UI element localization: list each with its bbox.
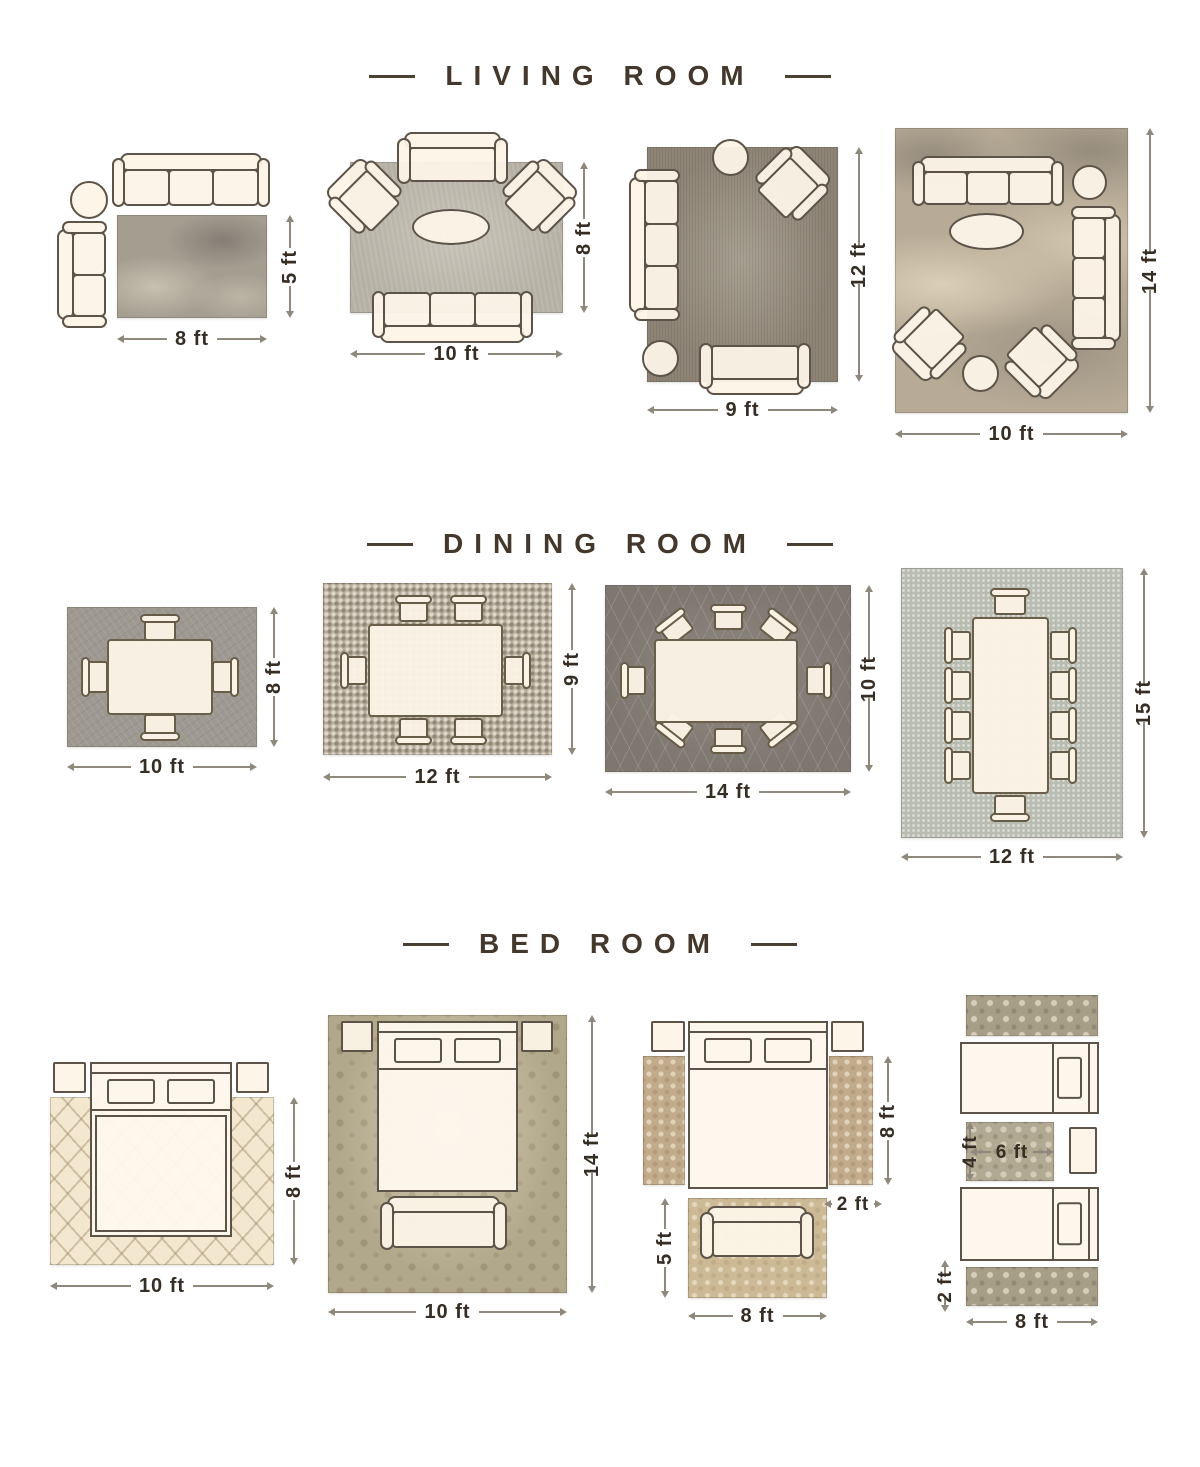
pillow [454,1038,502,1063]
arrowhead [270,740,278,747]
width-dimension: 9 ft [647,398,838,422]
dim-line [289,222,291,248]
chair-back [450,595,487,604]
arrowhead [580,306,588,313]
arrowhead [844,788,851,796]
chair-back [710,745,747,754]
chair-back [710,604,747,613]
sofa-cushions [644,180,679,310]
dim-line [469,776,545,778]
dim-line [273,614,275,658]
dim-line [908,856,981,858]
sofa-cushions [72,232,106,317]
arrowhead [831,406,838,414]
height-dimension: 12 ft [847,147,871,382]
arrowhead [117,335,124,343]
title-dash [403,943,449,946]
bed [688,1021,828,1189]
dining-table [972,617,1049,794]
arrowhead [605,788,612,796]
dim-line [1149,135,1151,252]
pillow [704,1038,752,1063]
dining-table [368,624,503,717]
dining-chair [502,654,529,687]
title-dash [367,543,413,546]
nightstand [53,1062,86,1093]
chair-back [395,736,432,745]
dim-line [293,1104,295,1162]
chair-back [944,747,953,784]
dining-chair [992,793,1028,820]
dim-line [571,688,573,748]
nightstand [831,1021,864,1052]
sofa [912,156,1064,206]
pillows [379,1033,516,1070]
chair-back [1068,627,1077,664]
sofa-cushions [123,169,259,206]
dining-chair [342,654,369,687]
arrowhead [1121,430,1128,438]
dim-label: 8 ft [869,1104,907,1138]
runner-rug [966,995,1098,1036]
dim-label: 2 ft [832,1195,875,1214]
headboard [92,1064,230,1074]
dim-line [591,1022,593,1135]
arrowhead [875,1200,882,1208]
dining-table [107,639,213,715]
coffee-table [949,213,1024,250]
coffee-table [412,209,490,245]
dim-line [217,338,260,340]
chair-back [1068,667,1077,704]
dim-line [887,1140,889,1179]
width-dimension: 14 ft [605,780,851,804]
rug-size-guide: LIVING ROOM 5 ft 8 ft [0,0,1200,1467]
dining-chair [83,659,110,695]
chair-back [1068,707,1077,744]
foot-rug-height-dimension: 5 ft [653,1198,677,1298]
arrowhead [661,1198,669,1205]
arrowhead [688,1312,695,1320]
dim-line [1043,856,1116,858]
dim-label: 5 ft [271,250,309,284]
width-dimension: 10 ft [350,342,563,366]
dim-line [977,1151,991,1153]
arrowhead [966,1122,974,1129]
sofa [112,153,270,207]
title-dash [785,75,831,78]
dim-label: 10 ft [131,757,193,777]
chair-back [230,657,239,697]
arrowhead [865,765,873,772]
twin-bed [960,1042,1099,1114]
chair-back [140,614,180,623]
chair-back [944,667,953,704]
living-room-title: LIVING ROOM [0,60,1200,92]
sofa-cushions [383,292,522,327]
width-dimension: 10 ft [328,1300,567,1324]
arrowhead [588,1286,596,1293]
bench-seat [392,1211,495,1248]
arrowhead [901,853,908,861]
chair-back [522,652,531,689]
dim-line [612,791,697,793]
headboard [1088,1044,1097,1112]
headboard [379,1023,516,1033]
arrowhead [1091,1318,1098,1326]
sofa [1071,206,1121,350]
dim-label: 10 ft [416,1302,478,1322]
loveseat [699,343,811,395]
dim-line [973,1321,1007,1323]
bedside-runner-rug [829,1056,873,1185]
arrowhead [545,773,552,781]
dim-line [759,791,844,793]
arrowhead [328,1308,335,1316]
dim-line [488,353,556,355]
dining-chair [712,726,745,752]
dim-line [1149,290,1151,407]
bench [380,1196,507,1250]
nightstand [1069,1127,1097,1174]
arrowhead [661,1291,669,1298]
chair-back [81,657,90,697]
chair-back [990,813,1030,822]
arrowhead [970,1148,977,1156]
width-dimension: 8 ft [117,327,267,351]
arrowhead [1140,568,1148,575]
dining-chair [946,709,973,742]
dining-chair [397,597,430,624]
arrowhead [820,1312,827,1320]
arrowhead [290,1097,298,1104]
bed-room-title: BED ROOM [0,928,1200,960]
bench-arm [493,1202,507,1250]
dining-chair [946,749,973,782]
height-dimension: 5 ft [278,215,302,318]
height-dimension: 9 ft [560,583,584,755]
dim-line [57,1285,131,1287]
dim-label: 9 ft [718,400,768,420]
loveseat [397,132,508,184]
sofa [629,169,680,321]
dim-line [330,776,406,778]
dim-line [902,433,980,435]
arrowhead [647,406,654,414]
dining-chair [1048,629,1075,662]
arrowhead [895,430,902,438]
dim-line [1043,433,1121,435]
bed [90,1062,232,1237]
chair-back [340,652,349,689]
arrowhead [855,147,863,154]
nightstand [341,1021,373,1052]
dim-label: 2 ft [936,1265,955,1308]
dim-line [273,696,275,740]
arrowhead [1140,831,1148,838]
dim-label: 14 ft [573,1131,611,1177]
dim-line [654,409,718,411]
arrowhead [290,1258,298,1265]
dining-chair [804,664,830,697]
dim-label: 9 ft [553,652,591,686]
chair-back [620,662,629,699]
sofa-back [706,378,804,395]
sofa-arm [797,343,811,389]
pillow [167,1079,215,1104]
side-table [962,355,999,392]
headboard [690,1023,826,1033]
chair-back [140,732,180,741]
dim-line [479,1311,560,1313]
arrowhead [286,215,294,222]
dim-line [887,1063,889,1102]
arrowhead [865,585,873,592]
dim-label: 10 ft [980,424,1042,444]
sofa-cushions [1072,217,1106,339]
side-table [642,340,679,377]
bench-seat [712,1221,802,1257]
arrowhead [966,1318,973,1326]
runner-rug [966,1267,1098,1306]
dim-line [783,1315,821,1317]
dining-chair [452,597,485,624]
dim-label: 5 ft [646,1231,684,1265]
dim-label: 10 ft [131,1276,193,1296]
arrowhead [966,1174,974,1181]
pillow [764,1038,812,1063]
dim-line [193,766,250,768]
dining-chair [142,712,178,739]
arrowhead [1146,128,1154,135]
dim-label: 14 ft [697,782,759,802]
dim-line [1143,575,1145,684]
dim-label: 12 ft [840,241,878,287]
width-dimension: 12 ft [323,765,552,789]
dim-label: 10 ft [425,344,487,364]
dining-chair [946,629,973,662]
chair-back [450,736,487,745]
dim-label: 12 ft [981,847,1043,867]
dining-chair [1048,749,1075,782]
chair-back [990,588,1030,597]
pillow [394,1038,442,1063]
arrowhead [267,1282,274,1290]
height-dimension: 8 ft [262,607,286,747]
arrowhead [286,311,294,318]
section-title-text: LIVING ROOM [445,60,754,92]
sofa-back [380,325,525,343]
dim-line [664,1267,666,1291]
dim-line [289,286,291,312]
dim-label: 12 ft [406,767,468,787]
arrowhead [568,748,576,755]
dim-label: 6 ft [991,1143,1034,1162]
nightstand [651,1021,685,1052]
height-dimension: 15 ft [1132,568,1156,838]
chair-back [944,627,953,664]
dining-table [654,639,798,723]
arrowhead [588,1015,596,1022]
dim-line [695,1315,733,1317]
pillows [690,1033,826,1070]
dim-label: 14 ft [1131,247,1169,293]
dining-chair [397,716,430,743]
chair-back [823,662,832,699]
bench [700,1206,814,1259]
accent-rug-width-dimension: 6 ft [970,1140,1054,1164]
height-dimension: 14 ft [580,1015,604,1293]
dim-label: 8 ft [255,660,293,694]
title-dash [787,543,833,546]
dim-label: 8 ft [565,221,603,255]
title-dash [369,75,415,78]
dim-label: 8 ft [275,1164,313,1198]
width-dimension: 10 ft [895,422,1128,446]
width-dimension: 10 ft [50,1274,274,1298]
dining-room-title: DINING ROOM [0,528,1200,560]
dining-chair [992,590,1028,617]
runner-length-dimension: 8 ft [966,1310,1098,1334]
sofa-seat [409,147,496,182]
dim-line [868,592,870,660]
bed [377,1021,518,1192]
runner-width-dimension: 2 ft [824,1192,882,1216]
dim-line [571,590,573,650]
chair-back [395,595,432,604]
width-dimension: 12 ft [901,845,1123,869]
nightstand [236,1062,269,1093]
dim-line [1033,1151,1047,1153]
section-title-text: DINING ROOM [443,528,757,560]
side-table [712,139,749,176]
dim-line [124,338,167,340]
height-dimension: 10 ft [857,585,881,772]
dining-chair [712,606,745,632]
dim-line [1143,722,1145,831]
arrowhead [855,375,863,382]
pillow [1057,1057,1082,1099]
height-dimension: 8 ft [572,162,596,313]
sofa [372,291,533,343]
section-title-text: BED ROOM [479,928,721,960]
arrowhead [323,773,330,781]
dim-label: 10 ft [850,655,888,701]
arrowhead [260,335,267,343]
dim-line [858,284,860,376]
sofa-cushions [923,171,1053,205]
arrowhead [824,1200,831,1208]
twin-bed [960,1187,1099,1261]
bench-arm [800,1212,814,1259]
headboard [1088,1189,1097,1259]
side-table [70,181,108,219]
foot-rug-width-dimension: 8 ft [688,1304,827,1328]
arrowhead [568,583,576,590]
arrowhead [350,350,357,358]
dim-line [664,1205,666,1229]
dim-line [193,1285,267,1287]
arrowhead [884,1056,892,1063]
dim-line [583,169,585,219]
title-dash [751,943,797,946]
arrowhead [560,1308,567,1316]
dim-line [858,154,860,246]
dim-line [591,1173,593,1286]
dim-line [768,409,832,411]
dining-chair [210,659,237,695]
runner-width-dimension: 2 ft [933,1260,957,1312]
dining-chair [1048,709,1075,742]
chair-back [944,707,953,744]
arrowhead [67,763,74,771]
dining-chair [622,664,648,697]
pillow [107,1079,155,1104]
dim-line [583,257,585,307]
dim-line [335,1311,416,1313]
bedside-runner-rug [643,1056,685,1185]
dining-chair [946,669,973,702]
dim-line [1057,1321,1091,1323]
nightstand [521,1021,553,1052]
arrowhead [580,162,588,169]
chair-back [1068,747,1077,784]
sofa-seat [711,345,799,380]
dining-chair [1048,669,1075,702]
dining-chair [452,716,485,743]
side-table [1072,165,1107,200]
dim-label: 8 ft [1007,1312,1057,1332]
dim-line [293,1200,295,1258]
height-dimension: 8 ft [282,1097,306,1265]
duvet [95,1115,227,1232]
width-dimension: 10 ft [67,755,257,779]
dim-line [357,353,425,355]
arrowhead [1047,1148,1054,1156]
arrowhead [1146,406,1154,413]
dim-line [74,766,131,768]
dim-label: 15 ft [1125,680,1163,726]
area-rug [117,215,267,318]
pillow [1057,1202,1082,1245]
sofa-back [1104,214,1121,342]
dim-label: 8 ft [167,329,217,349]
arrowhead [884,1178,892,1185]
loveseat [57,221,107,328]
arrowhead [50,1282,57,1290]
arrowhead [1116,853,1123,861]
dim-line [868,698,870,766]
arrowhead [270,607,278,614]
sofa-arm [494,138,508,184]
pillows [92,1074,230,1111]
dim-label: 8 ft [733,1306,783,1326]
runner-length-dimension: 8 ft [876,1056,900,1185]
arrowhead [250,763,257,771]
arrowhead [556,350,563,358]
height-dimension: 14 ft [1138,128,1162,413]
